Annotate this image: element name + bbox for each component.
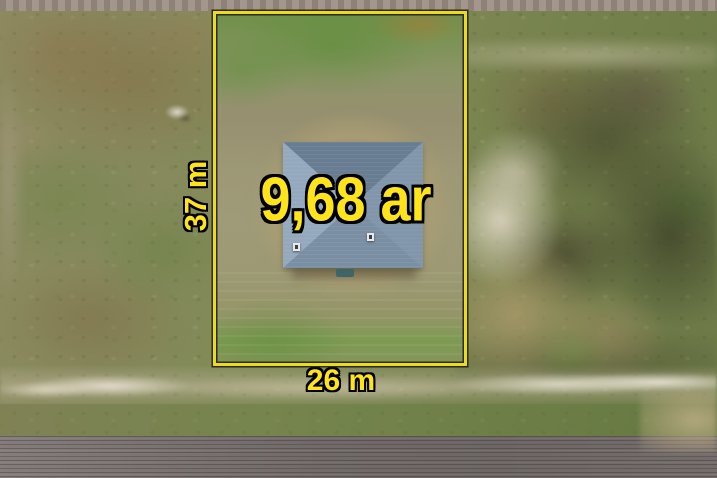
- area-label: 9,68 ar: [261, 165, 432, 236]
- grass-texture: [0, 0, 717, 478]
- ground-object: [165, 103, 191, 123]
- left-edge-trail: [0, 40, 34, 330]
- roadside-grass: [0, 404, 717, 438]
- dry-grass-patch: [640, 390, 717, 452]
- depth-measurement-label: 37 m: [178, 161, 214, 232]
- gravel-road: [0, 436, 717, 478]
- aerial-plot-photo: 9,68 ar 37 m 26 m: [0, 0, 717, 478]
- house-shadow: [292, 263, 416, 279]
- top-dirt-path: [0, 0, 717, 11]
- entrance-object: [336, 269, 354, 277]
- mow-lines: [216, 272, 464, 360]
- grass-field-background: [0, 0, 717, 478]
- frontage-measurement-label: 26 m: [307, 364, 375, 398]
- chimney: [293, 243, 300, 251]
- right-shrub-area: [455, 5, 717, 380]
